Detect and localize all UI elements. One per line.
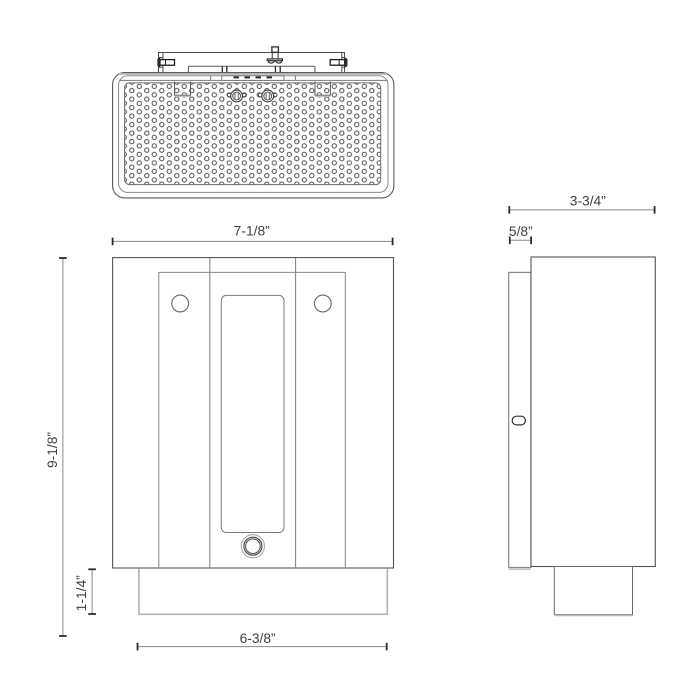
svg-text:1-1/4”: 1-1/4” [74,575,89,611]
svg-text:3-3/4”: 3-3/4” [570,194,606,209]
svg-text:7-1/8”: 7-1/8” [234,224,270,239]
svg-text:6-3/8”: 6-3/8” [240,631,276,646]
svg-text:9-1/8”: 9-1/8” [45,432,60,468]
svg-text:5/8”: 5/8” [509,224,533,239]
